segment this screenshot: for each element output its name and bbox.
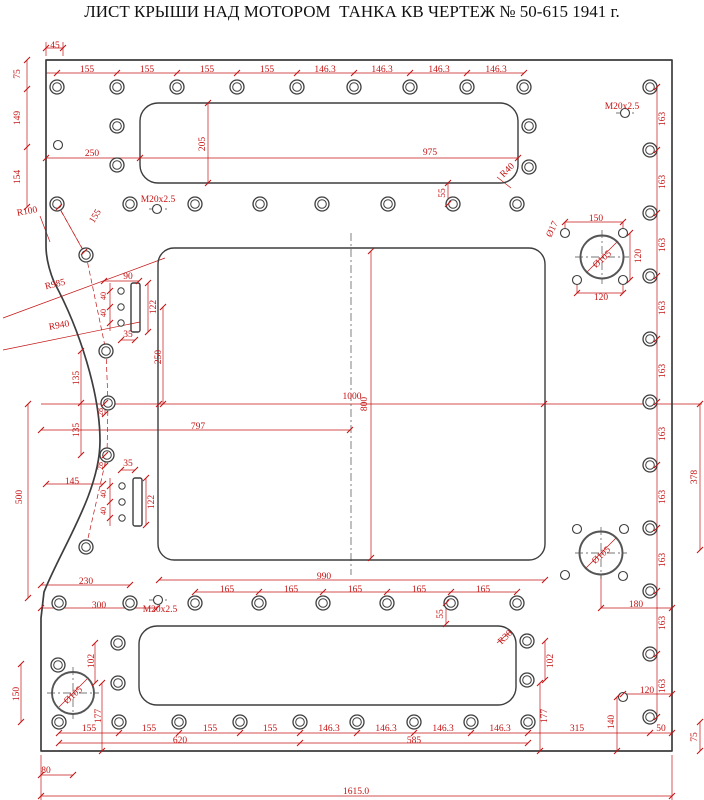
- svg-text:163: 163: [658, 553, 668, 568]
- svg-text:40: 40: [99, 490, 108, 498]
- svg-text:180: 180: [629, 600, 644, 610]
- svg-text:120: 120: [640, 686, 655, 696]
- svg-text:R100: R100: [16, 205, 38, 218]
- svg-text:40: 40: [99, 309, 108, 317]
- svg-text:155: 155: [142, 724, 157, 734]
- svg-text:1000: 1000: [343, 392, 362, 402]
- svg-text:75: 75: [690, 732, 700, 742]
- small-slot-holes: [118, 288, 125, 521]
- svg-text:140: 140: [607, 715, 617, 730]
- svg-text:620: 620: [173, 736, 188, 746]
- blueprint-page: { "title": "ЛИСТ КРЫШИ НАД МОТОРОМ ТАНКА…: [0, 0, 704, 800]
- svg-text:M20x2.5: M20x2.5: [141, 195, 176, 205]
- svg-text:155: 155: [80, 65, 95, 75]
- svg-text:Ø17: Ø17: [545, 220, 561, 239]
- svg-text:230: 230: [79, 577, 94, 587]
- svg-text:R30: R30: [497, 628, 515, 646]
- large-hole-circles: [52, 236, 624, 715]
- svg-text:122: 122: [149, 300, 159, 315]
- svg-text:135: 135: [72, 423, 82, 438]
- svg-text:M20x2.5: M20x2.5: [605, 102, 640, 112]
- svg-text:35: 35: [123, 459, 133, 469]
- svg-text:165: 165: [476, 585, 491, 595]
- svg-text:146.3: 146.3: [432, 724, 454, 734]
- svg-text:Ø105: Ø105: [591, 249, 614, 271]
- svg-text:146.3: 146.3: [489, 724, 511, 734]
- svg-text:163: 163: [658, 238, 668, 253]
- svg-text:102: 102: [87, 654, 97, 669]
- svg-text:165: 165: [284, 585, 299, 595]
- svg-text:40: 40: [99, 292, 108, 300]
- svg-text:177: 177: [540, 709, 550, 724]
- svg-text:155: 155: [82, 724, 97, 734]
- svg-text:50: 50: [656, 724, 666, 734]
- svg-text:135: 135: [72, 371, 82, 386]
- svg-text:163: 163: [658, 679, 668, 694]
- svg-text:500: 500: [15, 490, 25, 505]
- svg-text:102: 102: [546, 654, 556, 669]
- svg-text:155: 155: [200, 65, 215, 75]
- svg-text:R940: R940: [48, 319, 70, 332]
- svg-text:150: 150: [12, 687, 22, 702]
- svg-text:120: 120: [594, 293, 609, 303]
- svg-text:165: 165: [348, 585, 363, 595]
- svg-text:315: 315: [570, 724, 585, 734]
- svg-text:146.3: 146.3: [375, 724, 397, 734]
- svg-text:155: 155: [140, 65, 155, 75]
- svg-text:35: 35: [123, 330, 133, 340]
- svg-text:300: 300: [92, 601, 107, 611]
- svg-text:155: 155: [263, 724, 278, 734]
- svg-text:40: 40: [99, 507, 108, 515]
- bolt-holes: [50, 80, 657, 729]
- svg-text:90: 90: [123, 272, 133, 282]
- svg-text:585: 585: [407, 736, 422, 746]
- svg-text:149: 149: [13, 111, 23, 126]
- svg-text:163: 163: [658, 490, 668, 505]
- svg-text:163: 163: [658, 364, 668, 379]
- svg-text:163: 163: [658, 427, 668, 442]
- svg-text:177: 177: [94, 709, 104, 724]
- svg-text:163: 163: [658, 175, 668, 190]
- svg-text:797: 797: [191, 422, 206, 432]
- svg-text:146.3: 146.3: [314, 65, 336, 75]
- svg-text:1615.0: 1615.0: [343, 787, 369, 797]
- svg-text:Ø105: Ø105: [62, 685, 85, 707]
- svg-text:146.3: 146.3: [485, 65, 507, 75]
- svg-text:28: 28: [96, 408, 105, 416]
- svg-text:28: 28: [96, 462, 105, 470]
- svg-text:55: 55: [438, 188, 448, 198]
- svg-text:154: 154: [13, 170, 23, 185]
- technical-drawing: 45155155155155146.3146.3146.3146.3M20x2.…: [0, 0, 704, 800]
- svg-text:146.3: 146.3: [318, 724, 340, 734]
- svg-text:975: 975: [423, 148, 438, 158]
- svg-text:165: 165: [220, 585, 235, 595]
- svg-text:45: 45: [50, 41, 60, 51]
- svg-text:146.3: 146.3: [428, 65, 450, 75]
- svg-text:145: 145: [65, 477, 80, 487]
- svg-text:Ø105: Ø105: [590, 545, 613, 567]
- svg-text:M20x2.5: M20x2.5: [143, 605, 178, 615]
- svg-text:378: 378: [690, 470, 700, 485]
- svg-text:250: 250: [85, 149, 100, 159]
- svg-text:150: 150: [589, 214, 604, 224]
- svg-text:163: 163: [658, 301, 668, 316]
- plate-outline: [41, 60, 672, 751]
- svg-text:55: 55: [436, 609, 446, 619]
- svg-text:75: 75: [13, 69, 23, 79]
- svg-text:146.3: 146.3: [371, 65, 393, 75]
- svg-text:800: 800: [360, 397, 370, 412]
- svg-text:155: 155: [260, 65, 275, 75]
- svg-text:163: 163: [658, 112, 668, 127]
- svg-text:205: 205: [198, 137, 208, 152]
- svg-text:R985: R985: [44, 278, 67, 293]
- svg-text:155: 155: [88, 208, 104, 226]
- svg-text:250: 250: [154, 350, 164, 365]
- svg-text:165: 165: [412, 585, 427, 595]
- svg-text:990: 990: [317, 572, 332, 582]
- svg-text:155: 155: [203, 724, 218, 734]
- svg-text:163: 163: [658, 616, 668, 631]
- svg-text:80: 80: [41, 766, 51, 776]
- svg-text:120: 120: [634, 249, 644, 264]
- svg-text:122: 122: [147, 495, 157, 510]
